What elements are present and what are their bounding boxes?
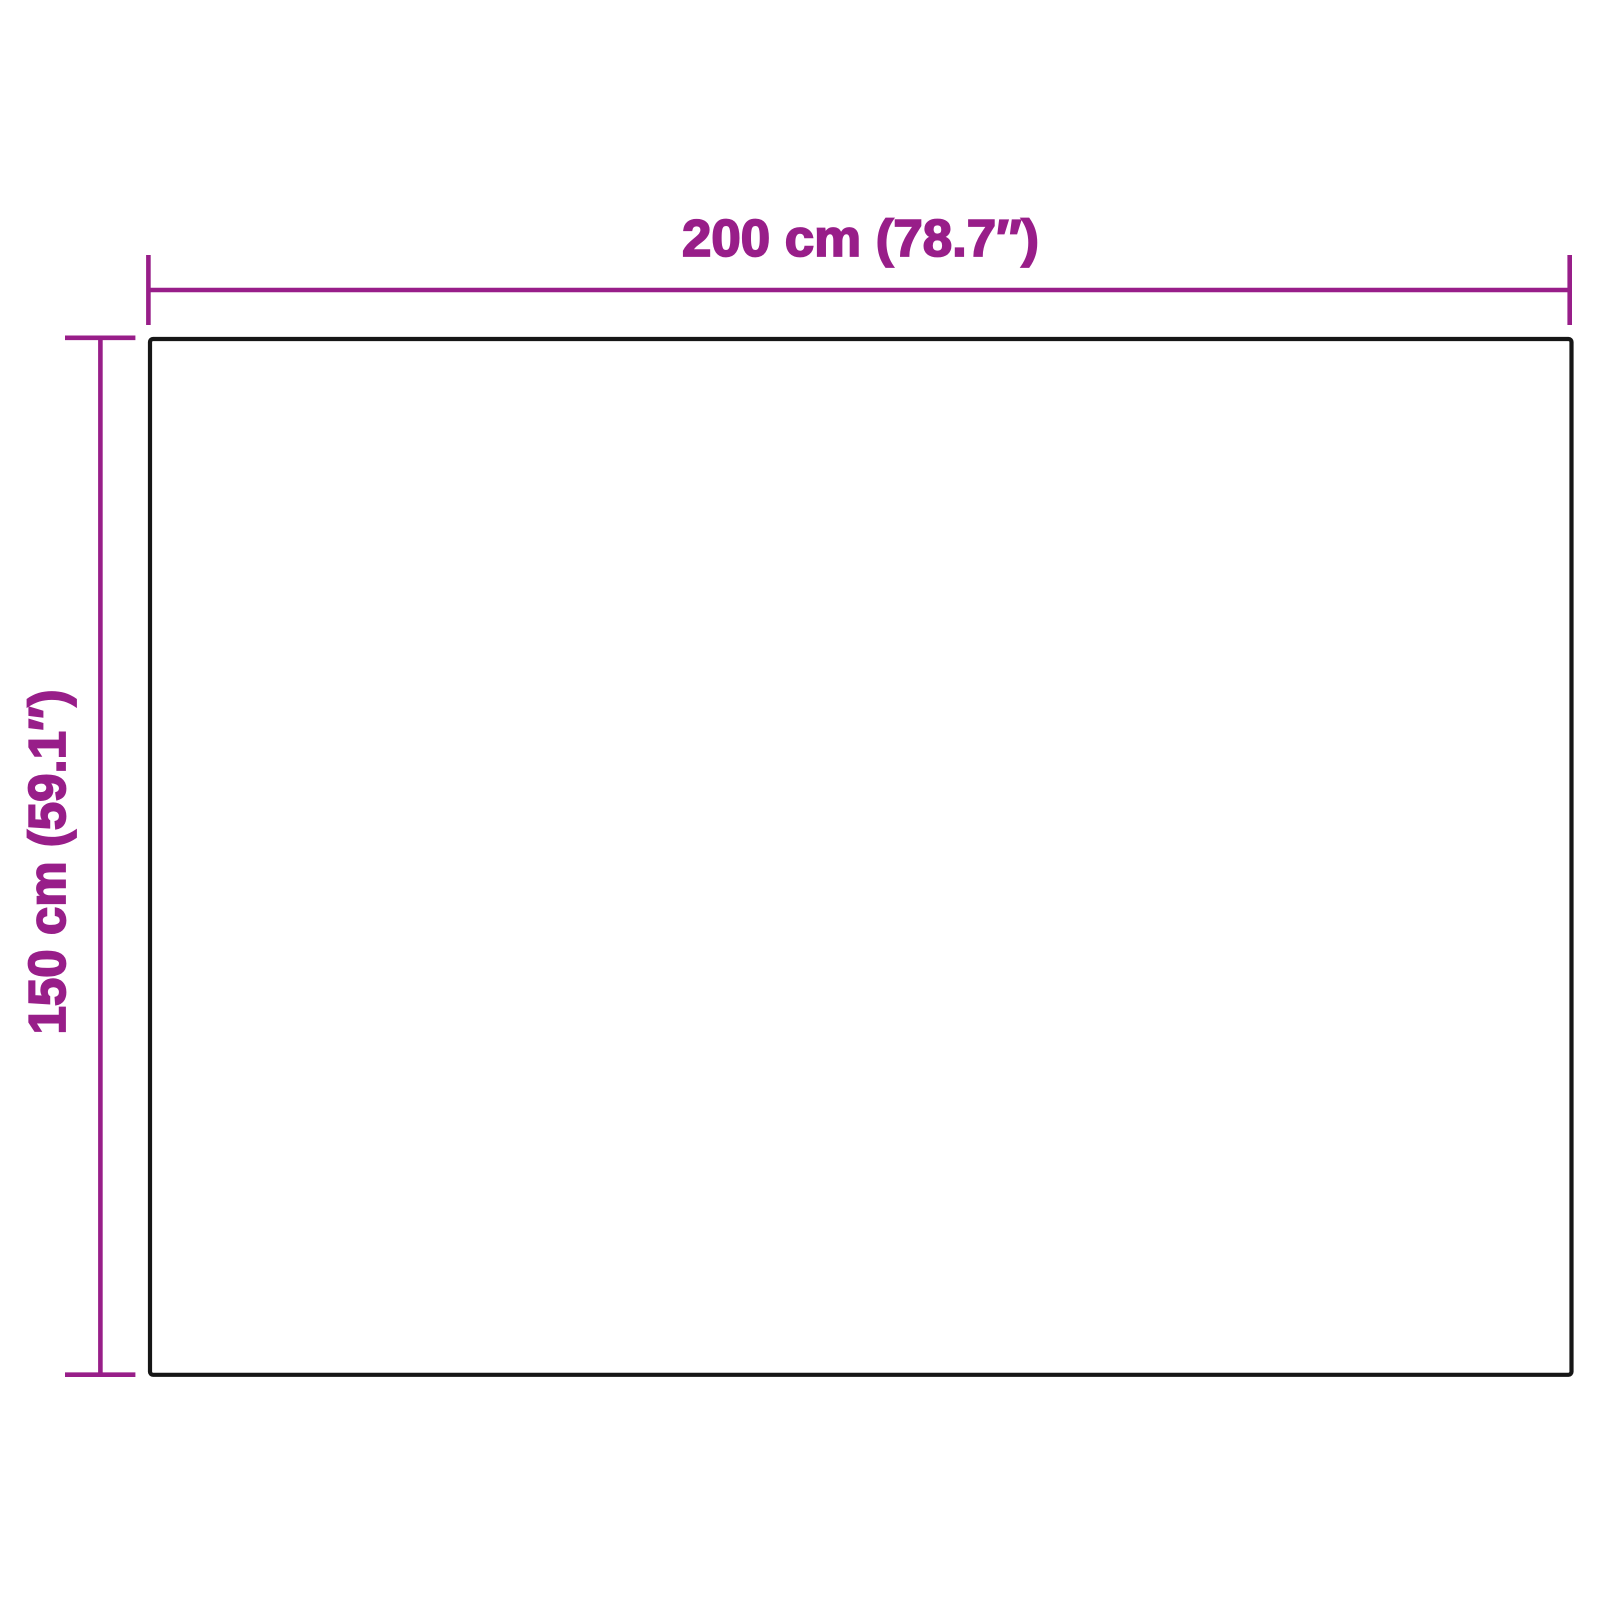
svg-text:150 cm (59.1″): 150 cm (59.1″): [19, 690, 77, 1035]
svg-text:200 cm (78.7″): 200 cm (78.7″): [682, 210, 1039, 268]
